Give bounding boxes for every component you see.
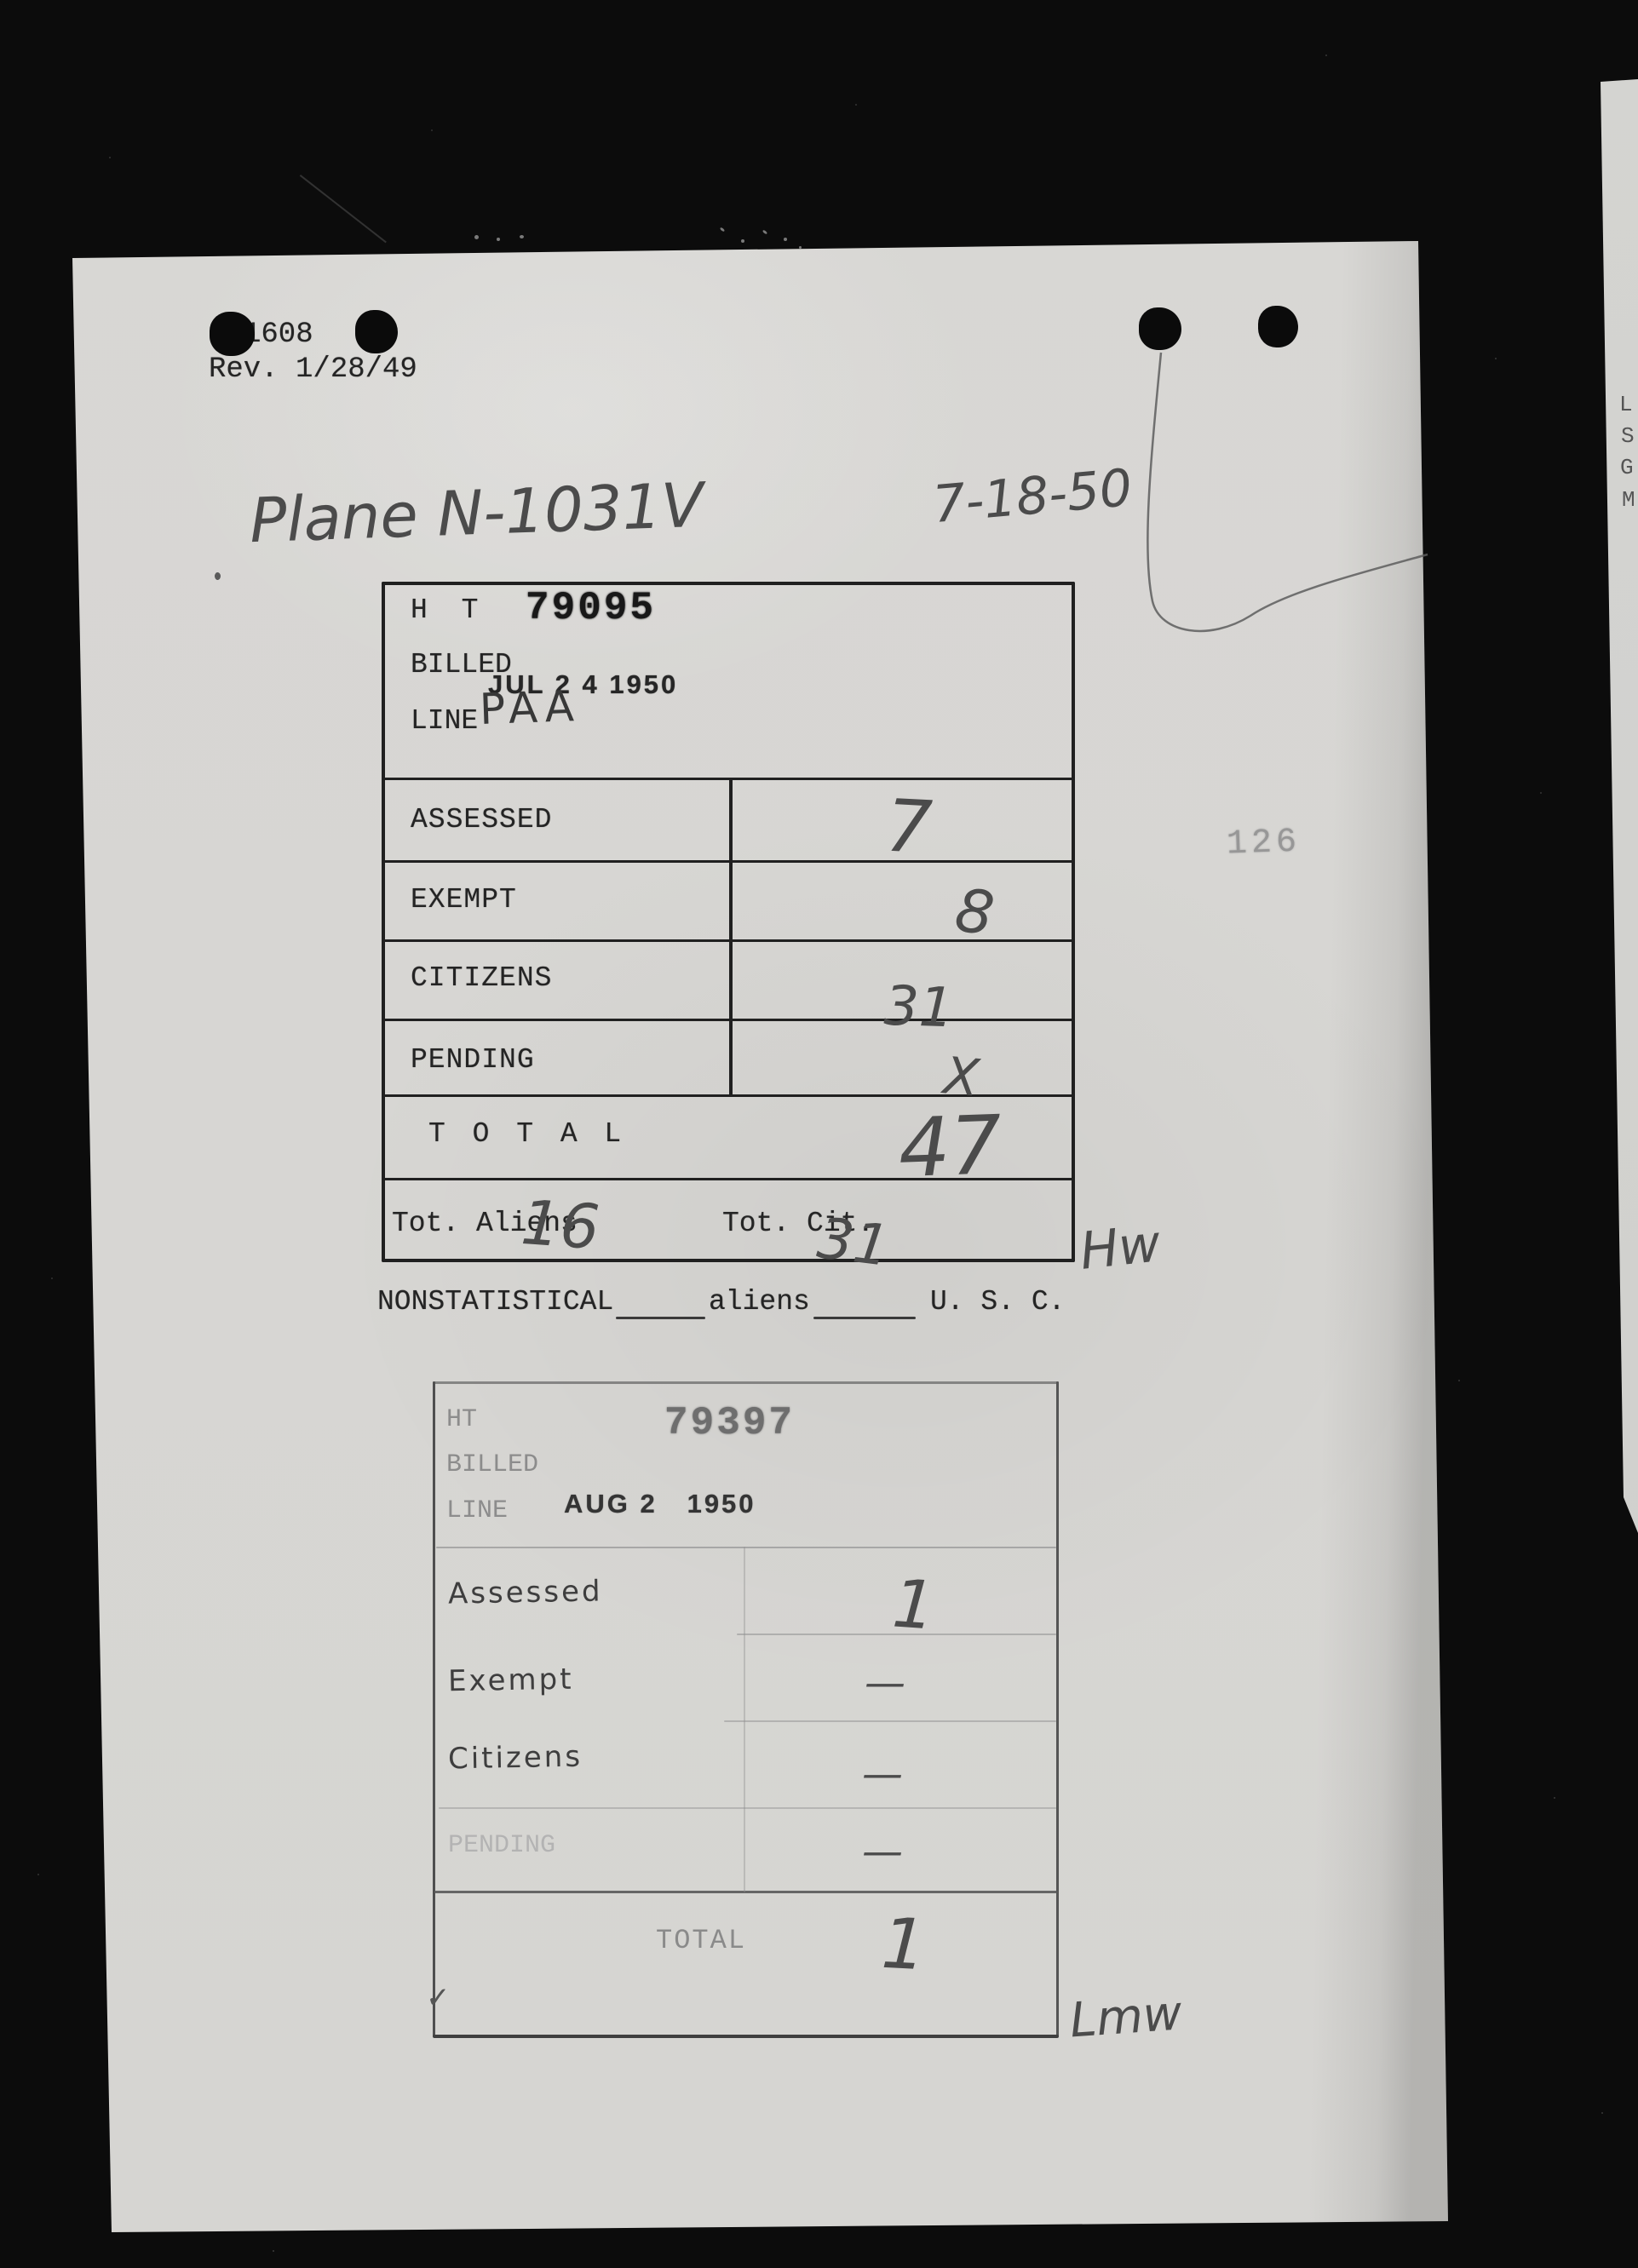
tot-aliens-value: 16 [519,1186,601,1263]
tot-cit-value: 31 [814,1205,894,1279]
row-value: — [865,1659,905,1707]
total-label: TOTAL [656,1925,746,1956]
dust-mark [784,238,787,241]
blank-line [616,1317,705,1319]
hole-punch [355,310,398,353]
card1-column-divider [729,778,733,1097]
card1-border [382,582,1075,585]
strip-letter: L [1619,392,1633,417]
dust-mark [474,235,479,239]
billed-label: BILLED [446,1450,538,1479]
card2-divider [434,1891,1058,1893]
card2-divider [439,1807,1056,1809]
revision-date: Rev. 1/28/49 [209,353,417,386]
blank-line [813,1317,916,1319]
ht-number-stamp: 79095 [526,586,656,630]
row-label: PENDING [411,1044,535,1076]
usc-label: U. S. C. [930,1286,1065,1318]
dust-mark [497,238,500,241]
film-speckles [0,0,2,2]
clerk-initials: Hw [1078,1214,1164,1281]
row-label: ASSESSED [411,804,552,835]
card1-divider [382,1019,1075,1021]
card2-divider [436,1547,1056,1548]
card2-divider [724,1720,1056,1722]
card1-border [382,582,385,1262]
hole-punch [1258,306,1298,347]
strip-letter: G [1620,455,1634,480]
card1-border [382,1259,1075,1262]
hole-punch [210,312,255,356]
checkmark: ✓ [426,1981,451,2015]
scanned-document: L S G M 1608 Rev. 1/28/49 Plane N-1031V … [0,0,1638,2268]
card1-divider [382,778,1075,780]
total-value: 1 [880,1903,928,1987]
clerk-initials: Lmw [1068,1985,1184,2048]
row-label: PENDING [448,1831,555,1860]
dust-mark [762,229,768,234]
card2-border [433,1381,1059,1384]
total-value: 47 [897,1099,1003,1196]
aliens-label: aliens [709,1286,810,1318]
ht-label: HT [446,1405,477,1434]
line-label: LINE [411,705,478,737]
row-label: Exempt [448,1662,574,1699]
card2-border [433,1381,435,2037]
pencil-dot [215,572,221,580]
line-label: LINE [446,1496,508,1525]
card1-divider [382,860,1075,863]
card1-border [1072,582,1075,1262]
dust-mark [520,235,524,238]
page-number-stamp: 126 [1226,823,1302,864]
strip-letter: S [1621,423,1635,449]
dust-mark [799,246,802,249]
ht-number-stamp: 79397 [664,1401,795,1445]
row-value: — [862,1828,903,1875]
nonstatistical-label: NONSTATISTICAL [377,1286,613,1318]
row-value: 7 [883,784,934,871]
card2-border [1056,1381,1059,2037]
film-scratch [300,175,387,243]
dust-mark [741,239,744,243]
hole-punch [1139,307,1181,350]
strip-letter: M [1622,487,1635,513]
row-value: 31 [883,975,955,1041]
row-label: CITIZENS [411,962,552,994]
row-value: 1 [890,1565,938,1645]
line-value: PAA [479,681,581,734]
row-value: — [862,1750,903,1798]
row-label: Assessed [448,1574,603,1611]
billed-date-stamp: AUG 2 1950 [564,1489,756,1519]
row-label: Citizens [448,1740,583,1777]
card2-column-divider [744,1547,745,1892]
total-label: T O T A L [428,1118,626,1150]
card2-border [433,2035,1059,2038]
row-label: EXEMPT [411,884,517,916]
dust-mark [720,227,726,232]
ht-label: H T [411,594,486,626]
